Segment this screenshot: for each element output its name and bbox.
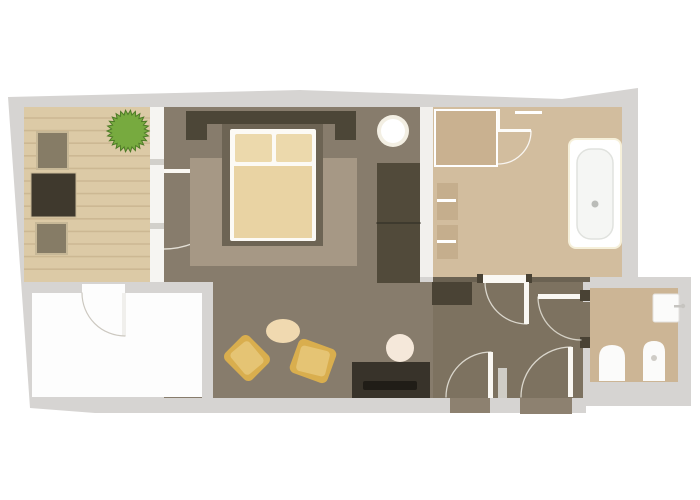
- wall-column-white-room: [202, 282, 213, 398]
- bedroom-bathroom-wall: [420, 107, 433, 277]
- bed-pillow-left: [235, 134, 272, 162]
- wc-door-hinge-top: [580, 290, 590, 301]
- bath-hall-threshold: [482, 275, 527, 283]
- entrance-threshold-1: [450, 398, 490, 413]
- wc-bidet-drain: [651, 355, 657, 361]
- entrance-door-2-leaf: [568, 347, 573, 397]
- balcony-window-wall: [150, 107, 164, 282]
- bath-hall-door-leaf: [524, 282, 529, 324]
- wc-doorway-gap: [583, 302, 590, 338]
- bed-pillow-right: [276, 134, 312, 162]
- bathroom-door-jamb: [497, 109, 500, 132]
- balcony-table: [31, 173, 76, 217]
- entrance-door-1-leaf: [488, 352, 493, 398]
- headboard-left-post: [186, 111, 207, 140]
- white-room-door-leaf: [122, 293, 126, 336]
- vanity-shelf-top-line: [437, 199, 456, 202]
- white-room-door-opening: [82, 284, 125, 294]
- vanity-shelf-bottom-line: [437, 240, 456, 243]
- empty-white-room-floor: [32, 293, 202, 397]
- tv-cabinet-drawer: [363, 381, 417, 390]
- bedside-lamp: [381, 119, 405, 143]
- bath-hall-hinge-right: [526, 274, 532, 283]
- shower-tray: [435, 110, 497, 166]
- bed-duvet: [234, 166, 312, 238]
- bathroom-door-leaf: [497, 129, 531, 132]
- floor-plan-canvas: [0, 0, 700, 500]
- window-mullion-tick-1: [150, 159, 164, 165]
- wc-door-hinge-bottom: [580, 337, 590, 348]
- headboard-right-post: [335, 111, 356, 140]
- window-mullion-tick-2: [150, 223, 164, 229]
- entry-wall-stub: [498, 368, 507, 398]
- wc-sink: [653, 294, 679, 322]
- headboard-bar: [186, 111, 356, 124]
- tv-cabinet: [352, 362, 430, 398]
- entrance-threshold-2: [520, 398, 572, 414]
- living-pouf-oval: [266, 319, 300, 343]
- bath-hall-hinge-left: [477, 274, 483, 283]
- bathtub-inner: [577, 149, 613, 239]
- wc-toilet: [599, 345, 625, 381]
- living-side-table: [386, 334, 414, 362]
- balcony-chair-top: [37, 132, 68, 169]
- hall-dresser: [432, 282, 472, 305]
- floor-plan-svg: [0, 0, 700, 500]
- bathtub-drain: [592, 201, 599, 208]
- balcony-chair-bottom: [36, 223, 67, 254]
- wc-sink-faucet-knob: [681, 304, 685, 308]
- towel-rail: [515, 111, 542, 114]
- wc-door-leaf: [538, 294, 582, 299]
